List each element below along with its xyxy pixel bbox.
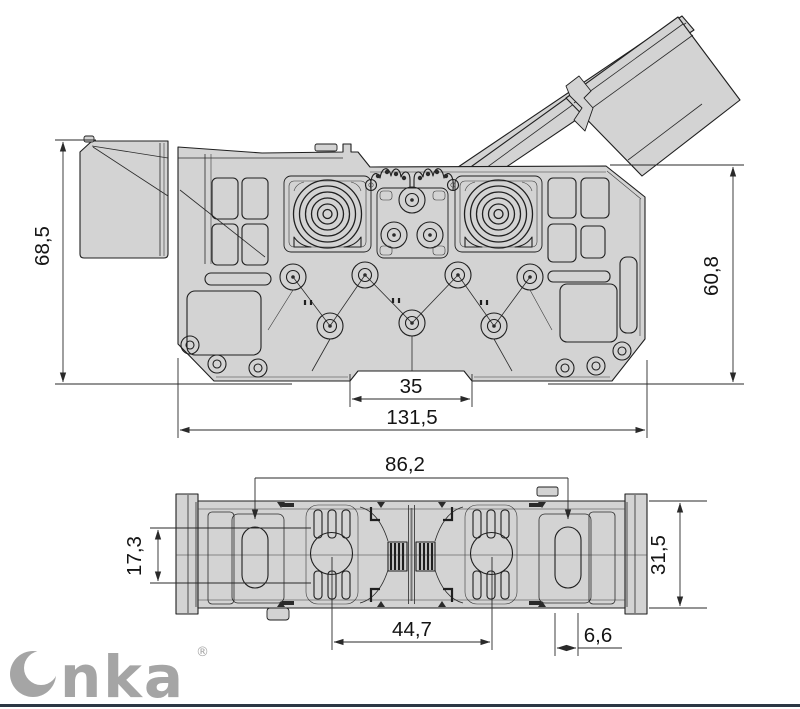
plan-view (176, 487, 647, 620)
dim-body-width: 31,5 (647, 501, 707, 608)
dim-mounting-span-label: 86,2 (385, 453, 425, 476)
dim-end-slot-length-label: 17,3 (123, 536, 146, 576)
dim-rail-slot: 35 (350, 374, 472, 407)
end-cover-plate (80, 136, 168, 258)
plan-top-tab (537, 487, 558, 496)
logo-wordmark: nka (60, 643, 185, 709)
onka-logo: nka ® (10, 643, 209, 709)
dim-center-span-label: 44,7 (392, 618, 432, 641)
dim-body-width-label: 31,5 (647, 535, 670, 575)
plan-bottom-tab (267, 608, 289, 620)
dim-right-height-label: 60,8 (700, 256, 723, 296)
housing-body (178, 144, 645, 381)
hinge-panel (377, 187, 448, 258)
footer-rule (0, 704, 800, 707)
dim-end-slot-width-label: 6,6 (584, 624, 613, 647)
registered-mark: ® (196, 645, 209, 660)
dim-left-height-label: 68,5 (31, 226, 54, 266)
dim-end-slot-width: 6,6 (555, 613, 622, 656)
technical-drawing-sheet: 68,5 60,8 35 131,5 (0, 0, 800, 709)
dim-overall-width-label: 131,5 (386, 406, 437, 429)
terminal-block-drawing: 68,5 60,8 35 131,5 (0, 0, 800, 709)
side-view (80, 16, 740, 381)
dim-rail-slot-label: 35 (400, 375, 423, 398)
